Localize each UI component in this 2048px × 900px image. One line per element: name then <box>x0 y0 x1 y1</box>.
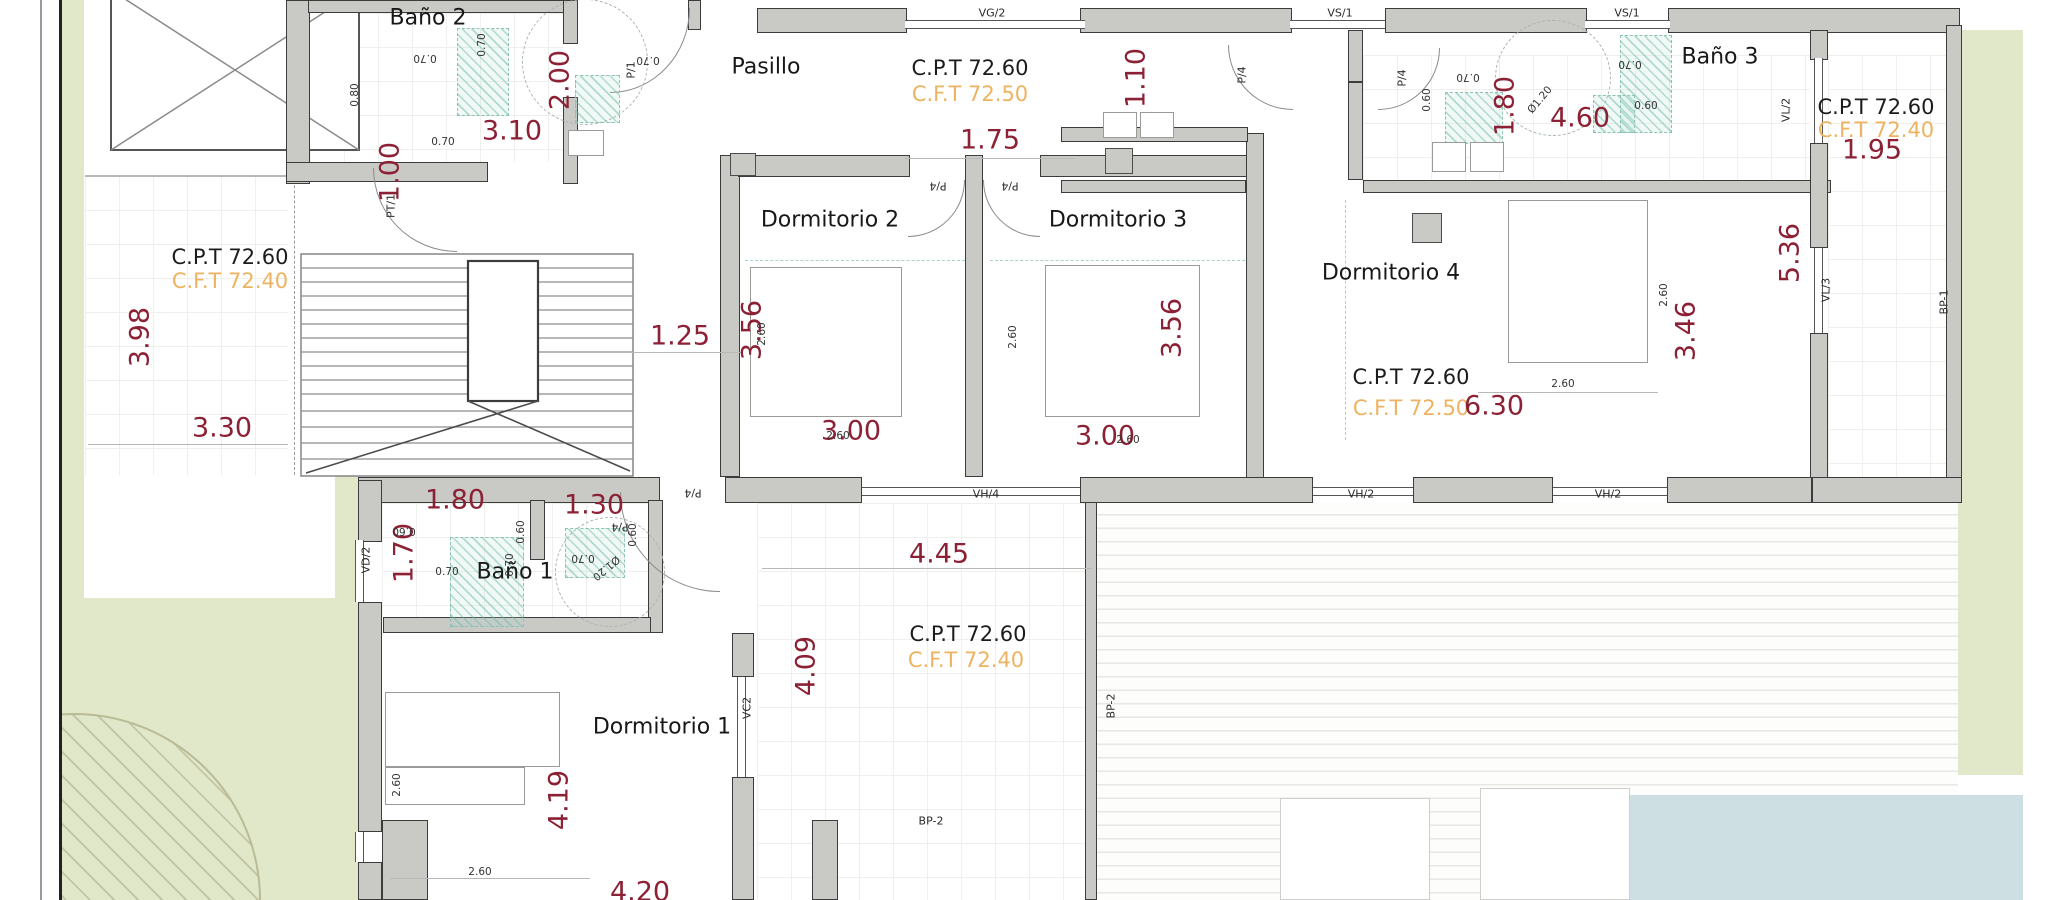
dim-1-75: 1.75 <box>960 125 1020 156</box>
label-bp1: BP-1 <box>1938 290 1951 315</box>
label-bp2-horizontal: BP-2 <box>919 815 944 828</box>
sdim: 0.70 <box>636 54 659 66</box>
window-vc2 <box>737 677 746 777</box>
bed-dorm4 <box>1508 200 1648 363</box>
sdim: 0.70 <box>413 52 436 64</box>
wall <box>688 0 701 30</box>
deck-structure <box>1280 798 1430 900</box>
sink-bano3 <box>1470 142 1504 172</box>
room-label-dorm4: Dormitorio 4 <box>1322 261 1460 286</box>
wall <box>358 602 382 832</box>
window-label-vl2: VL/2 <box>1780 98 1793 122</box>
sdim: 2.60 <box>756 322 768 345</box>
window-label-vs1-a: VS/1 <box>1327 7 1352 20</box>
wall <box>965 155 983 477</box>
window-label-vh2-b: VH/2 <box>1595 488 1622 501</box>
wall <box>725 477 862 503</box>
room-label-bano3: Baño 3 <box>1682 45 1759 70</box>
window-label-vh4: VH/4 <box>973 488 1000 501</box>
sdim: 2.60 <box>1658 283 1670 306</box>
window-vh4 <box>862 487 1080 496</box>
sdim: 2.60 <box>468 866 491 878</box>
door-label-pt1: PT/1 <box>385 194 398 218</box>
bed-dorm1 <box>385 692 560 767</box>
tree-symbol <box>62 713 261 900</box>
dim-4-45: 4.45 <box>909 539 969 570</box>
sdim: 0.60 <box>627 523 639 546</box>
wall <box>1667 477 1812 503</box>
dim-line <box>390 878 590 879</box>
bed-dorm1-foot <box>385 767 525 805</box>
window-label-vd2: VD/2 <box>360 547 373 574</box>
wardrobe-dorm2 <box>730 153 756 176</box>
dim-line <box>88 444 288 445</box>
wall <box>1061 180 1246 193</box>
dim-6-30: 6.30 <box>1464 391 1524 422</box>
window-vg2 <box>905 20 1085 29</box>
dim-3-30: 3.30 <box>192 413 252 444</box>
sdim: 0.60 <box>1421 88 1433 111</box>
staircase <box>300 253 634 477</box>
sdim: 0.70 <box>476 33 488 56</box>
dim-3-10: 3.10 <box>482 116 542 147</box>
level-cpt-terrace: C.P.T 72.60 <box>909 622 1026 646</box>
wall <box>382 820 428 900</box>
level-cft-dorm4: C.F.T 72.50 <box>1353 396 1469 420</box>
wall <box>1946 25 1962 478</box>
dim-5-36: 5.36 <box>1775 223 1806 283</box>
window-vs1-b <box>1585 20 1670 29</box>
dim-1-30: 1.30 <box>564 490 624 521</box>
sdim: 0.70 <box>435 566 458 578</box>
level-cft-terrace: C.F.T 72.40 <box>908 648 1024 672</box>
guide-line <box>745 260 965 261</box>
wall <box>757 8 907 33</box>
bed-dorm2 <box>750 267 902 417</box>
void-x-box <box>110 0 360 152</box>
wardrobe-dorm4 <box>1412 213 1442 243</box>
level-cft-left: C.F.T 72.40 <box>172 269 288 293</box>
dim-1-25: 1.25 <box>650 321 710 352</box>
room-label-pasillo: Pasillo <box>731 55 800 80</box>
wall <box>812 820 838 900</box>
guide-line <box>1345 200 1346 440</box>
wall <box>1080 477 1313 503</box>
wall <box>1085 502 1097 900</box>
level-cpt-pasillo: C.P.T 72.60 <box>911 56 1028 80</box>
window-dorm1-west <box>355 832 364 862</box>
sdim: 0.60 <box>1634 100 1657 112</box>
wall <box>286 0 310 184</box>
wall <box>1810 30 1828 60</box>
dim-3-98: 3.98 <box>125 307 156 367</box>
wardrobe-dorm3 <box>1105 148 1133 174</box>
level-cft-pasillo: C.F.T 72.50 <box>912 82 1028 106</box>
door-label-p4-bano3: P/4 <box>1396 69 1409 86</box>
wall <box>1348 30 1363 82</box>
sink-bano3 <box>1432 142 1466 172</box>
floor-plan: Baño 2 Pasillo Baño 3 Dormitorio 2 Dormi… <box>0 0 2048 900</box>
frame-line <box>40 0 42 900</box>
cabinet-vestibule <box>1140 112 1174 138</box>
level-cpt-dorm4: C.P.T 72.60 <box>1352 365 1469 389</box>
guide-line <box>990 260 1245 261</box>
sdim: 0.60 <box>392 525 415 537</box>
dim-1-80-bano1: 1.80 <box>425 485 485 516</box>
room-label-bano2: Baño 2 <box>390 6 467 31</box>
sdim: 0.70 <box>504 553 516 576</box>
window-label-vs1-b: VS/1 <box>1614 7 1639 20</box>
sdim: 2.60 <box>391 773 403 796</box>
sdim: 2.60 <box>826 430 849 442</box>
dim-1-10: 1.10 <box>1121 48 1152 108</box>
deck-structure <box>1480 788 1630 900</box>
window-vs1-a <box>1290 20 1385 29</box>
wall <box>732 777 754 900</box>
pool <box>1630 795 2023 900</box>
terrace-top-line <box>85 175 288 177</box>
dim-4-60: 4.60 <box>1550 103 1610 134</box>
sdim: 2.60 <box>1551 378 1574 390</box>
cabinet-vestibule <box>1103 112 1137 138</box>
wall <box>1348 82 1363 180</box>
window-label-vc2: VC2 <box>741 697 754 719</box>
wall <box>1812 477 1962 503</box>
wall <box>1810 143 1828 248</box>
dim-4-20: 4.20 <box>610 877 670 900</box>
door-label-p4-bano1: P/4 <box>684 487 701 500</box>
room-label-dorm2: Dormitorio 2 <box>761 208 899 233</box>
wall <box>1363 180 1831 193</box>
window-label-vh2-a: VH/2 <box>1348 488 1375 501</box>
door-label-p4-dorm2: P/4 <box>929 180 946 193</box>
wall <box>732 633 754 677</box>
dim-line <box>630 352 742 353</box>
room-label-dorm3: Dormitorio 3 <box>1049 208 1187 233</box>
sdim: 2.60 <box>1116 434 1139 446</box>
wall <box>1080 8 1292 33</box>
sdim: 2.60 <box>1007 325 1019 348</box>
window-label-vl3: VL/3 <box>1820 278 1833 302</box>
dim-3-56-dorm3: 3.56 <box>1157 298 1188 358</box>
door-label-p4-dorm4: P/4 <box>1236 66 1249 83</box>
wall <box>1246 133 1264 478</box>
sdim: 0.70 <box>431 136 454 148</box>
dim-3-46: 3.46 <box>1671 301 1702 361</box>
garden-strip-right <box>1958 30 2023 775</box>
dim-4-09: 4.09 <box>791 636 822 696</box>
sdim: 0.70 <box>1456 71 1479 83</box>
wall <box>358 862 382 900</box>
sink-bano2 <box>568 130 604 156</box>
room-label-dorm1: Dormitorio 1 <box>593 715 731 740</box>
door-label-p4-dorm3: P/4 <box>1001 180 1018 193</box>
terrace-left-floor <box>85 176 288 475</box>
dim-2-00: 2.00 <box>545 50 576 110</box>
dim-1-80-bano3: 1.80 <box>1490 76 1521 136</box>
wall <box>1413 477 1553 503</box>
sdim: 0.70 <box>571 552 594 564</box>
wall <box>358 480 382 542</box>
dim-1-95: 1.95 <box>1842 135 1902 166</box>
wall <box>530 500 545 560</box>
sdim: 0.70 <box>1618 58 1641 70</box>
label-bp2-vertical: BP-2 <box>1105 694 1118 719</box>
sdim: 0.80 <box>349 83 361 106</box>
garden-bottom-left <box>62 598 360 900</box>
shower-hatch-bano3 <box>1620 35 1672 133</box>
dim-4-19: 4.19 <box>544 770 575 830</box>
sdim: 0.60 <box>515 520 527 543</box>
wall <box>1810 333 1828 478</box>
dim-line <box>905 158 1075 159</box>
level-cpt-left: C.P.T 72.60 <box>171 245 288 269</box>
level-cpt-right: C.P.T 72.60 <box>1817 95 1934 119</box>
window-label-vg2: VG/2 <box>979 7 1006 20</box>
wall <box>738 155 910 177</box>
